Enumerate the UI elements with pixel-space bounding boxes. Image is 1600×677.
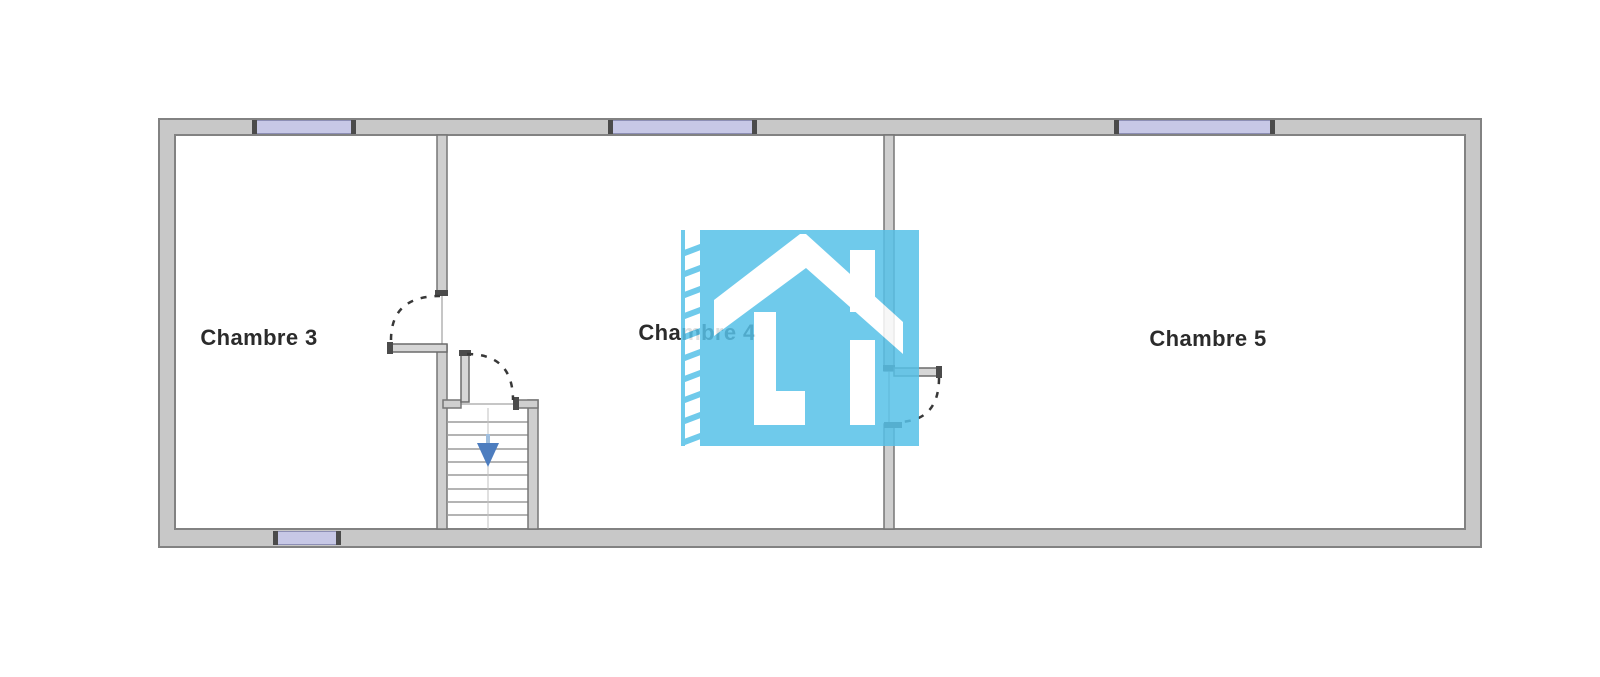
house-floor [754, 391, 805, 425]
wall-segment [437, 345, 447, 529]
house-right-wall [850, 340, 875, 425]
window-top-middle [612, 121, 753, 134]
interior-wall-left [435, 135, 448, 529]
door-leaf [389, 344, 447, 352]
window-bottom-left [277, 532, 337, 545]
watermark-logo [681, 230, 919, 446]
door-swing-arc [391, 296, 440, 340]
wall-segment [443, 400, 461, 408]
staircase [443, 350, 538, 529]
stair-treads [447, 408, 528, 529]
window-top-left [256, 121, 352, 134]
door-leaf-cap [387, 342, 393, 354]
stair-enclosure [443, 397, 538, 529]
door-staircase [459, 350, 513, 402]
window-top-right [1118, 121, 1271, 134]
floor-plan-canvas: Chambre 3 Chambre 4 Chambre 5 [0, 0, 1600, 677]
door-leaf-cap [936, 366, 942, 378]
room-label-chambre-5: Chambre 5 [1149, 326, 1266, 351]
floor-plan-page: Chambre 3 Chambre 4 Chambre 5 [0, 0, 1600, 677]
door-chambre-3 [387, 296, 447, 354]
room-label-chambre-3: Chambre 3 [200, 325, 317, 350]
wall-segment [437, 135, 447, 295]
wall-segment [528, 400, 538, 529]
door-swing-arc [467, 354, 513, 400]
door-leaf [461, 352, 469, 402]
logo-dashed-stripe [682, 230, 703, 446]
house-chimney [850, 250, 875, 312]
